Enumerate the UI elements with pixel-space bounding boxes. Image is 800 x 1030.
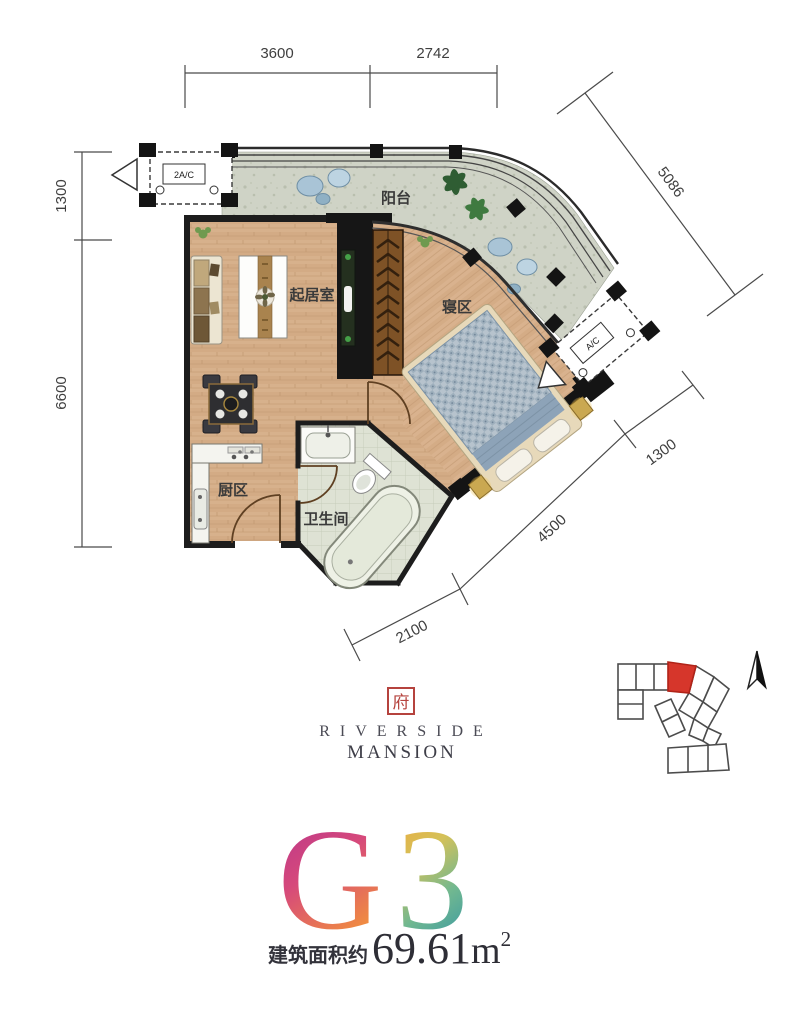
- seal-character: 府: [393, 693, 410, 712]
- dim-bottom-1300: 1300: [643, 436, 680, 469]
- wall-left: [184, 215, 190, 547]
- pebble: [488, 238, 512, 256]
- brand-name-line1: RIVERSIDE: [319, 723, 493, 740]
- pebble: [297, 176, 323, 196]
- tv-icon: [344, 286, 352, 312]
- pebble: [517, 259, 537, 275]
- ac-platform-left: 2A/C: [112, 143, 238, 207]
- area-number: 69.61: [372, 924, 471, 973]
- ac-left-label: 2A/C: [174, 170, 195, 180]
- railing-post: [449, 145, 462, 159]
- north-arrow-icon: [748, 651, 766, 688]
- tv-console: [341, 250, 355, 346]
- dim-bottom-2100: 2100: [393, 617, 430, 647]
- kitchen-sink: [194, 489, 207, 529]
- dim-top-left: 3600: [260, 45, 293, 62]
- unit-letter: G: [278, 800, 383, 960]
- wall-top: [184, 215, 327, 222]
- area-prefix: 建筑面积约: [268, 943, 368, 967]
- dim-top-right: 2742: [416, 45, 449, 62]
- label-bathroom: 卫生间: [303, 510, 348, 528]
- label-living-room: 起居室: [288, 286, 334, 304]
- dim-left-lower: 6600: [53, 376, 70, 409]
- area-value-text: 69.61m2: [372, 924, 511, 973]
- pebble: [316, 194, 330, 205]
- label-balcony: 阳台: [381, 189, 411, 207]
- area-unit: m: [471, 930, 501, 972]
- label-kitchen: 厨区: [218, 482, 248, 499]
- railing-post: [370, 144, 383, 158]
- key-plan-cell: [668, 744, 729, 773]
- unit-code-block: G 3 建筑面积约 69.61m2: [268, 800, 511, 973]
- wardrobe: [373, 230, 403, 375]
- dim-right-diagonal: 5086: [654, 164, 688, 201]
- floor-plan-page: 2A/C A/C 阳台 起居室 寝区 厨区 卫生间: [0, 0, 800, 1030]
- floor-plan-canvas: 2A/C A/C 阳台 起居室 寝区 厨区 卫生间: [0, 0, 800, 1030]
- key-plan: [618, 651, 766, 773]
- brand-logo: 府 RIVERSIDE MANSION: [319, 688, 493, 763]
- sofa: [191, 256, 222, 344]
- brand-name-line2: MANSION: [347, 742, 457, 763]
- dim-bottom-4500: 4500: [534, 511, 570, 546]
- dining-set: [203, 375, 257, 433]
- area-exponent: 2: [501, 927, 512, 951]
- pebble: [328, 169, 350, 187]
- vent-arrow-icon: [112, 159, 137, 190]
- label-sleeping-area: 寝区: [442, 298, 472, 316]
- dim-left-upper: 1300: [53, 179, 70, 212]
- coffee-table: [239, 256, 287, 338]
